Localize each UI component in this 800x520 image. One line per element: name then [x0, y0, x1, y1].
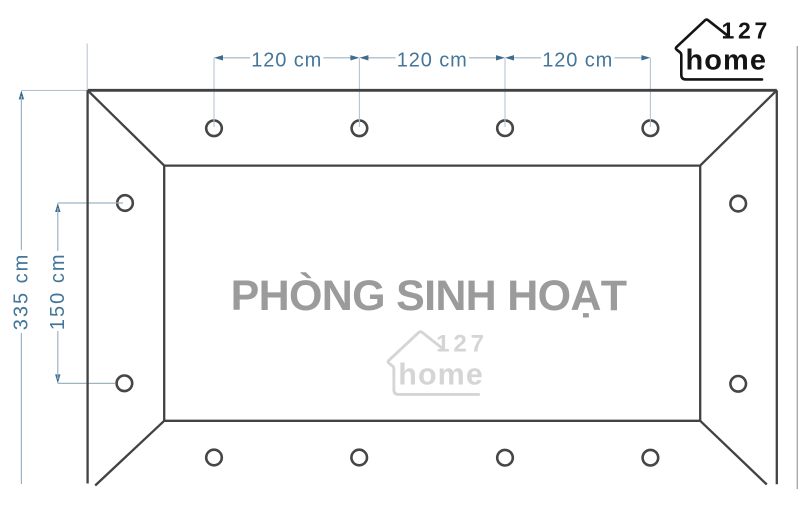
svg-text:120 cm: 120 cm — [542, 50, 613, 72]
svg-text:150 cm: 150 cm — [47, 253, 69, 331]
svg-text:home: home — [398, 357, 484, 391]
svg-text:120 cm: 120 cm — [251, 50, 322, 72]
svg-text:335 cm: 335 cm — [11, 253, 33, 331]
svg-text:PHÒNG SINH HOẠT: PHÒNG SINH HOẠT — [231, 271, 627, 320]
svg-text:127: 127 — [722, 18, 771, 44]
svg-text:home: home — [686, 45, 768, 77]
svg-text:120 cm: 120 cm — [397, 50, 468, 72]
svg-text:127: 127 — [436, 331, 488, 358]
